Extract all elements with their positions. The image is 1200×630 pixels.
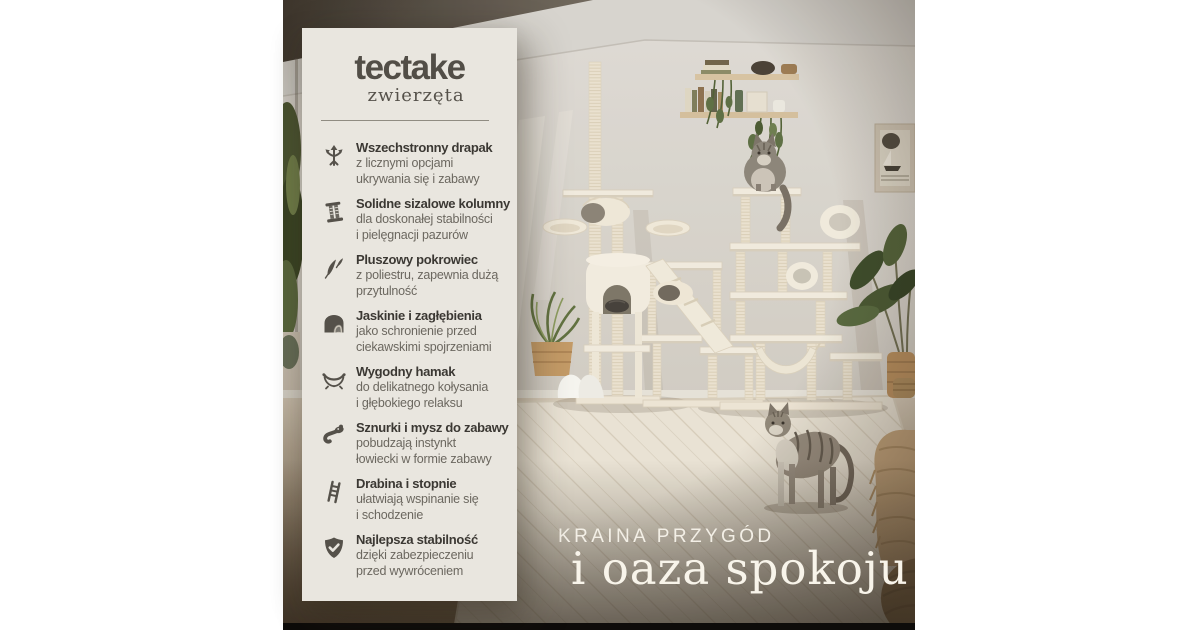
feature-title: Sznurki i mysz do zabawy xyxy=(356,420,508,436)
feature-title: Wygodny hamak xyxy=(356,364,488,380)
feathers-icon xyxy=(321,255,347,281)
feature-line: i schodzenie xyxy=(356,508,479,524)
feature-line: ukrywania się i zabawy xyxy=(356,172,492,188)
feature-line: przytulność xyxy=(356,284,498,300)
feature-item-jaskinie: Jaskinie i zagłębienia jako schronienie … xyxy=(321,308,511,355)
feature-title: Pluszowy pokrowiec xyxy=(356,252,498,268)
feature-line: przed wywróceniem xyxy=(356,564,478,580)
ladder-icon xyxy=(321,479,347,505)
feature-line: z poliestru, zapewnia dużą xyxy=(356,268,498,284)
brand-name: tectake xyxy=(354,49,464,87)
feature-line: ciekawskimi spojrzeniami xyxy=(356,340,492,356)
feature-line: ułatwiają wspinanie się xyxy=(356,492,479,508)
feature-list: Wszechstronny drapak z licznymi opcjami … xyxy=(302,121,517,579)
feature-item-mysz: Sznurki i mysz do zabawy pobudzają insty… xyxy=(321,420,511,467)
feature-item-drapak: Wszechstronny drapak z licznymi opcjami … xyxy=(321,140,511,187)
mouse-toy-icon xyxy=(321,423,347,449)
feature-item-drabina: Drabina i stopnie ułatwiają wspinanie si… xyxy=(321,476,511,523)
cave-icon xyxy=(321,311,347,337)
shield-check-icon xyxy=(321,535,347,561)
headline-bottom: i oaza spokoju xyxy=(571,543,909,595)
feature-line: pobudzają instynkt xyxy=(356,436,508,452)
feature-line: z licznymi opcjami xyxy=(356,156,492,172)
bottom-black-bar xyxy=(283,623,915,630)
sisal-column-icon xyxy=(321,199,347,225)
feature-title: Wszechstronny drapak xyxy=(356,140,492,156)
feature-item-stabilnosc: Najlepsza stabilność dzięki zabezpieczen… xyxy=(321,532,511,579)
feature-title: Drabina i stopnie xyxy=(356,476,479,492)
feature-title: Solidne sizalowe kolumny xyxy=(356,196,510,212)
feature-line: i pielęgnacji pazurów xyxy=(356,228,510,244)
brand-subtitle: zwierzęta xyxy=(354,85,464,107)
info-panel: tectake zwierzęta xyxy=(302,28,517,601)
feature-line: łowiecki w formie zabawy xyxy=(356,452,508,468)
feature-item-pokrowiec: Pluszowy pokrowiec z poliestru, zapewnia… xyxy=(321,252,511,299)
feature-title: Jaskinie i zagłębienia xyxy=(356,308,492,324)
feature-title: Najlepsza stabilność xyxy=(356,532,478,548)
feature-line: jako schronienie przed xyxy=(356,324,492,340)
feature-item-hamak: Wygodny hamak do delikatnego kołysania i… xyxy=(321,364,511,411)
feature-line: dzięki zabezpieczeniu xyxy=(356,548,478,564)
brand-logo: tectake zwierzęta xyxy=(302,28,517,107)
feature-item-kolumny: Solidne sizalowe kolumny dla doskonałej … xyxy=(321,196,511,243)
multi-directional-arrows-icon xyxy=(321,143,347,169)
feature-line: i głębokiego relaksu xyxy=(356,396,488,412)
feature-line: dla doskonałej stabilności xyxy=(356,212,510,228)
feature-line: do delikatnego kołysania xyxy=(356,380,488,396)
hammock-icon xyxy=(321,367,347,393)
